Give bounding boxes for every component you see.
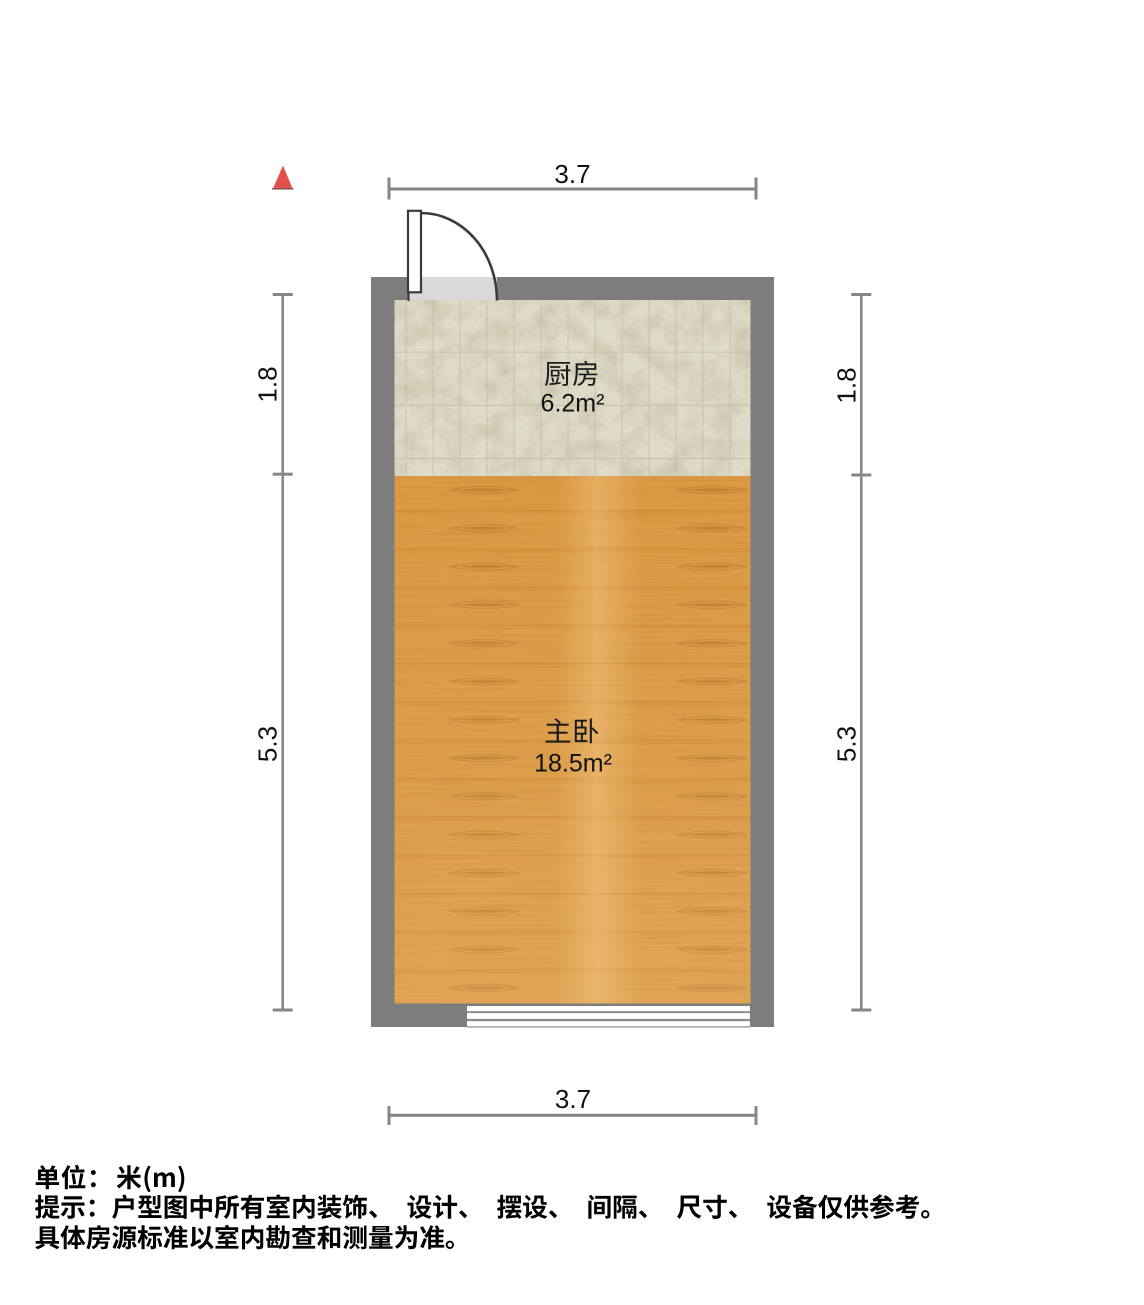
- svg-text:5.3: 5.3: [253, 726, 283, 762]
- svg-text:3.7: 3.7: [555, 1084, 591, 1114]
- svg-text:5.3: 5.3: [832, 726, 862, 762]
- svg-text:1.8: 1.8: [253, 366, 283, 402]
- svg-text:18.5m²: 18.5m²: [534, 750, 612, 778]
- svg-text:6.2m²: 6.2m²: [541, 390, 605, 418]
- svg-text:3.7: 3.7: [554, 159, 590, 189]
- svg-text:1.8: 1.8: [832, 367, 862, 403]
